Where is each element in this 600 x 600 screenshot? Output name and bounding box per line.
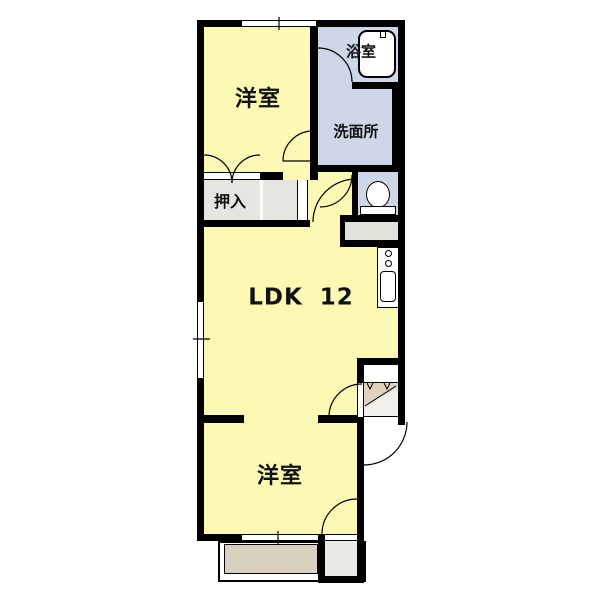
wall-bedroom-top-right — [310, 27, 318, 180]
bedroom-bottom-label: 洋室 — [257, 466, 303, 488]
oshiire-compartment-2 — [263, 180, 297, 220]
wall-counter-bottom — [340, 240, 405, 247]
storage-doorway-threshold — [325, 534, 357, 541]
wall-oshiire-bottom — [197, 220, 310, 227]
wall-washroom-right — [392, 82, 405, 172]
wall-bath-bottom — [352, 82, 405, 89]
wall-entrance-top — [357, 358, 405, 365]
bedroom-top-label: 洋室 — [235, 89, 281, 111]
bath-label: 浴室 — [346, 45, 376, 60]
wall-outer-left — [197, 20, 204, 541]
storage-room-floor — [325, 541, 357, 576]
wall-washroom-bottom — [318, 165, 405, 172]
ldk-label: LDK 12 — [248, 287, 354, 310]
wall-right-lower — [357, 417, 364, 583]
oshiire-door-front — [204, 172, 260, 180]
balcony-deck — [224, 544, 318, 574]
genkan-step — [364, 382, 398, 417]
wall-divider-left-stub — [197, 415, 244, 423]
toilet-bowl — [366, 181, 390, 208]
washroom-label: 洗面所 — [333, 125, 378, 140]
wall-bedroom-top-bottom — [260, 172, 283, 180]
counter-below-toilet — [345, 222, 402, 240]
entrance-outer-door-arc — [364, 422, 407, 465]
wall-storage-left — [318, 534, 325, 583]
window-top — [242, 20, 316, 27]
wall-bedroom-bottom-south — [197, 534, 242, 541]
genkan-dirt-floor — [364, 383, 398, 408]
window-left — [197, 302, 204, 378]
entrance-inner-doorway — [357, 383, 364, 417]
closet-label: 押入 — [214, 194, 246, 210]
kitchen-sink — [380, 271, 396, 302]
floor-plan: 洋室 浴室 洗面所 押入 LDK 12 洋室 — [0, 0, 600, 600]
toilet-tank — [360, 206, 396, 215]
wall-toilet-left — [352, 172, 358, 215]
window-bottom — [242, 534, 318, 541]
wall-right-lower-upper-seg — [357, 358, 364, 383]
wall-toilet-bottom — [340, 215, 405, 222]
bathtub-faucet-icon — [380, 31, 386, 38]
oshiire-side-panel — [297, 180, 308, 220]
kitchen-burner-icon — [385, 250, 392, 257]
kitchen-burner-icon — [385, 260, 392, 267]
